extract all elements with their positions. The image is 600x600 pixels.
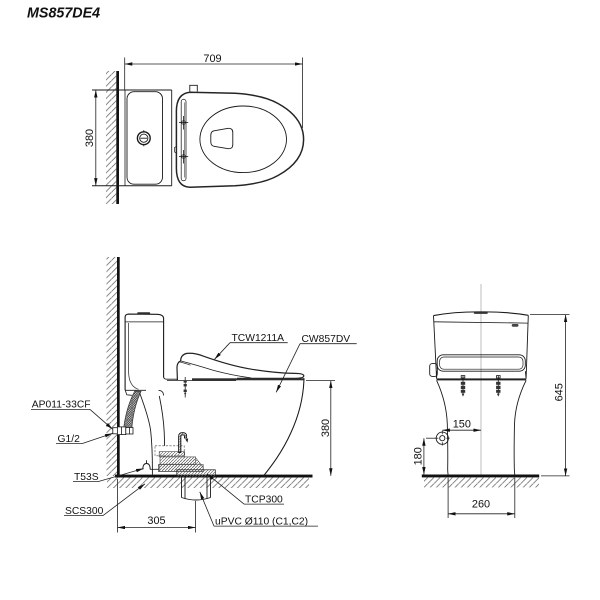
svg-text:TCW1211A: TCW1211A [232, 333, 285, 344]
svg-text:SCS300: SCS300 [65, 506, 104, 517]
svg-text:uPVC Ø110 (C1,C2): uPVC Ø110 (C1,C2) [215, 516, 308, 527]
svg-text:CW857DV: CW857DV [302, 334, 351, 345]
svg-text:645: 645 [553, 383, 565, 401]
svg-text:G1/2: G1/2 [58, 434, 81, 445]
svg-text:150: 150 [453, 419, 471, 431]
svg-text:305: 305 [147, 515, 165, 527]
svg-text:T53S: T53S [74, 472, 99, 483]
svg-text:MS857DE4: MS857DE4 [27, 6, 100, 22]
svg-text:260: 260 [472, 499, 490, 511]
svg-text:TCP300: TCP300 [245, 494, 283, 505]
svg-text:709: 709 [203, 53, 221, 65]
svg-text:380: 380 [320, 419, 332, 437]
svg-text:380: 380 [84, 129, 96, 147]
svg-text:AP011-33CF: AP011-33CF [32, 400, 91, 411]
svg-text:180: 180 [412, 447, 424, 465]
